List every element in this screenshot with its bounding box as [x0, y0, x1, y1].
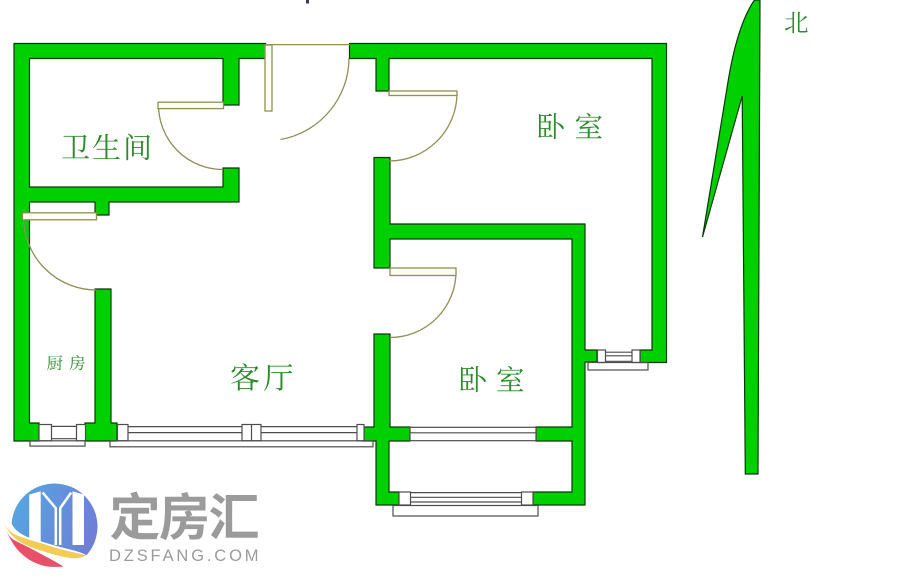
- svg-text:DZSFANG.COM: DZSFANG.COM: [109, 547, 261, 565]
